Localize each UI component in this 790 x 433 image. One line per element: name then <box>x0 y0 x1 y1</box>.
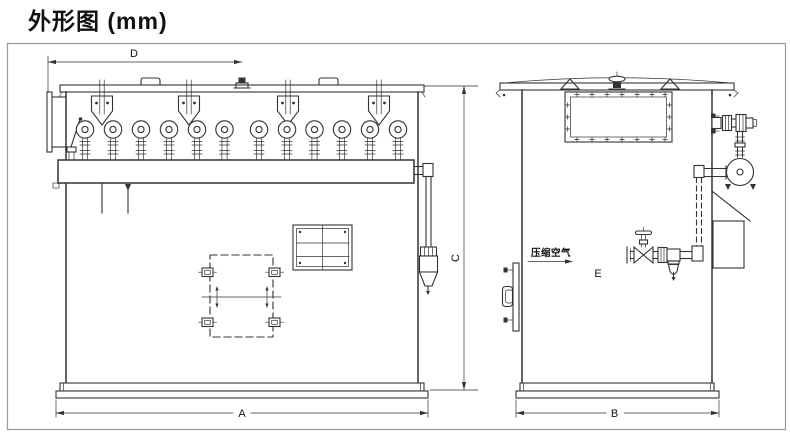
dim-b: B <box>516 400 719 420</box>
air-manifold <box>53 160 414 213</box>
globe-valve <box>634 228 653 264</box>
pulse-valve <box>361 121 378 160</box>
air-inlet-label: 压缩空气 E <box>528 247 602 280</box>
pulse-valve <box>216 121 233 160</box>
side-pulse-valve-assembly <box>694 115 757 269</box>
front-base-skirt <box>56 383 428 398</box>
pulse-valve-row <box>76 121 406 160</box>
front-roof <box>59 78 425 98</box>
outline-drawing: D <box>0 0 790 433</box>
door-clamp <box>266 268 284 277</box>
door-clamp <box>199 318 217 327</box>
dim-a: A <box>56 400 428 420</box>
support-brace <box>712 191 750 221</box>
pulse-valve <box>278 121 295 160</box>
bolted-panel <box>565 92 672 142</box>
compressed-air-label: 压缩空气 <box>531 247 571 259</box>
door-clamp <box>266 318 284 327</box>
door-clamp <box>199 268 217 277</box>
inspection-panel <box>293 225 352 270</box>
pulse-valve <box>306 121 323 160</box>
control-box <box>713 221 744 268</box>
dim-d-label: D <box>130 48 138 60</box>
front-view: D <box>47 48 478 420</box>
roof-handle <box>319 78 338 85</box>
pulse-valve <box>76 121 93 160</box>
air-filter <box>668 261 679 281</box>
filter-tee <box>667 249 680 261</box>
inlet-flange <box>47 92 66 152</box>
pulse-valve <box>132 121 149 160</box>
dim-c-label: C <box>450 254 462 262</box>
dim-b-label: B <box>611 408 618 420</box>
pulse-valve <box>389 121 406 160</box>
air-inlet-piping <box>627 228 703 282</box>
drawing-border <box>8 44 786 430</box>
pulse-valve <box>160 121 177 160</box>
side-door-edge <box>503 263 520 331</box>
side-view: 压缩空气 E B <box>496 68 757 420</box>
pulse-valve <box>250 121 267 160</box>
roof-handle <box>141 78 160 85</box>
dim-e-label: E <box>594 268 601 280</box>
pulse-valve <box>333 121 350 160</box>
side-base-skirt <box>516 383 719 398</box>
side-roof <box>496 72 738 97</box>
pulse-valve <box>188 121 205 160</box>
dim-c: C <box>424 86 478 390</box>
diaphragm-valve <box>727 159 754 186</box>
pulse-valve <box>104 121 121 160</box>
drawing-sheet: 外形图 (mm) <box>0 0 790 433</box>
dim-a-label: A <box>238 408 246 420</box>
access-door-hidden <box>199 255 284 337</box>
